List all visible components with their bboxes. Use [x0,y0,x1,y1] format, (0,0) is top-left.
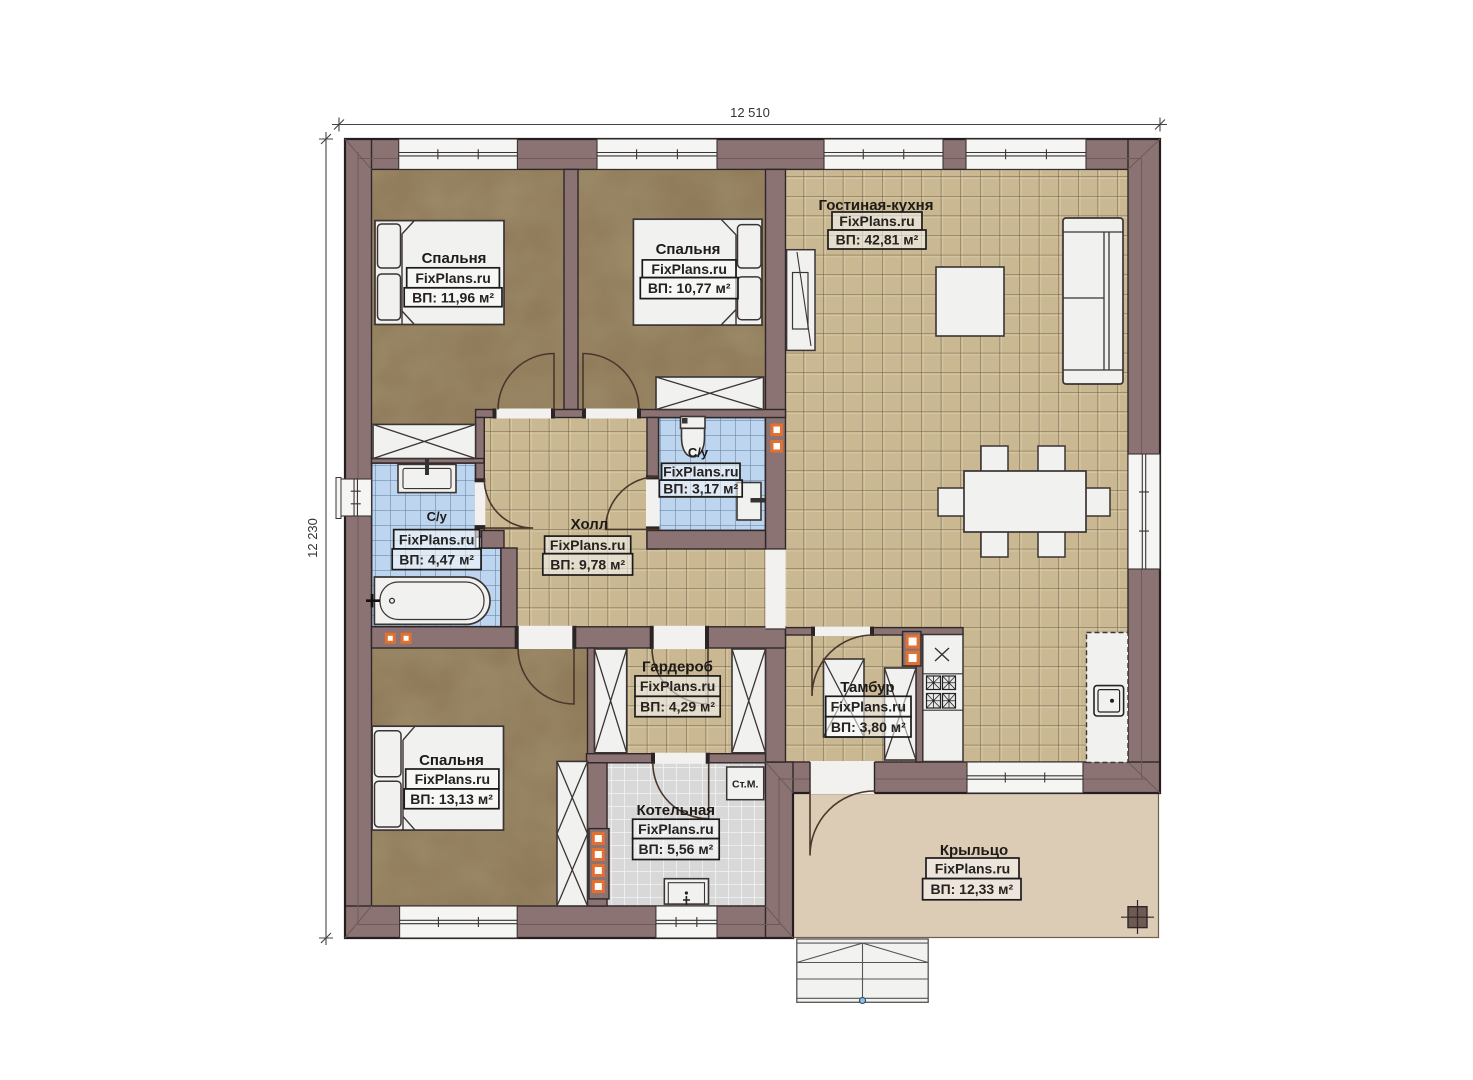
svg-text:Ст.М.: Ст.М. [732,779,758,791]
svg-text:FixPlans.ru: FixPlans.ru [663,464,738,480]
svg-text:ВП: 11,96 м²: ВП: 11,96 м² [412,289,494,305]
svg-text:С/у: С/у [427,509,448,524]
svg-text:FixPlans.ru: FixPlans.ru [399,531,474,547]
svg-text:12 230: 12 230 [305,518,320,558]
svg-text:FixPlans.ru: FixPlans.ru [640,678,715,694]
svg-text:Крыльцо: Крыльцо [940,842,1008,859]
svg-text:ВП: 10,77 м²: ВП: 10,77 м² [648,280,731,296]
svg-text:Котельная: Котельная [637,802,716,819]
svg-text:ВП: 42,81 м²: ВП: 42,81 м² [836,232,919,248]
svg-text:С/у: С/у [688,445,709,460]
svg-text:FixPlans.ru: FixPlans.ru [638,821,713,837]
svg-text:Гардероб: Гардероб [642,659,713,676]
svg-text:FixPlans.ru: FixPlans.ru [839,213,914,229]
svg-text:FixPlans.ru: FixPlans.ru [651,261,726,277]
svg-text:Спальня: Спальня [422,250,487,267]
svg-text:ВП: 4,47 м²: ВП: 4,47 м² [399,551,474,567]
svg-text:FixPlans.ru: FixPlans.ru [415,771,490,787]
svg-text:12 510: 12 510 [730,105,770,120]
svg-text:ВП: 9,78 м²: ВП: 9,78 м² [550,556,625,572]
svg-text:FixPlans.ru: FixPlans.ru [550,537,625,553]
svg-text:ВП: 5,56 м²: ВП: 5,56 м² [638,841,713,857]
svg-text:ВП: 4,29 м²: ВП: 4,29 м² [640,699,715,715]
svg-text:ВП: 3,17 м²: ВП: 3,17 м² [663,481,738,497]
svg-text:ВП: 12,33 м²: ВП: 12,33 м² [930,881,1013,897]
svg-text:ВП: 13,13 м²: ВП: 13,13 м² [410,791,493,807]
svg-text:Спальня: Спальня [656,241,721,258]
svg-text:Спальня: Спальня [419,752,484,769]
svg-text:Тамбур: Тамбур [840,679,894,696]
svg-text:FixPlans.ru: FixPlans.ru [415,270,490,286]
svg-text:FixPlans.ru: FixPlans.ru [935,860,1010,876]
svg-text:ВП: 3,80 м²: ВП: 3,80 м² [831,719,906,735]
svg-text:Холл: Холл [571,516,609,533]
svg-text:FixPlans.ru: FixPlans.ru [831,699,906,715]
